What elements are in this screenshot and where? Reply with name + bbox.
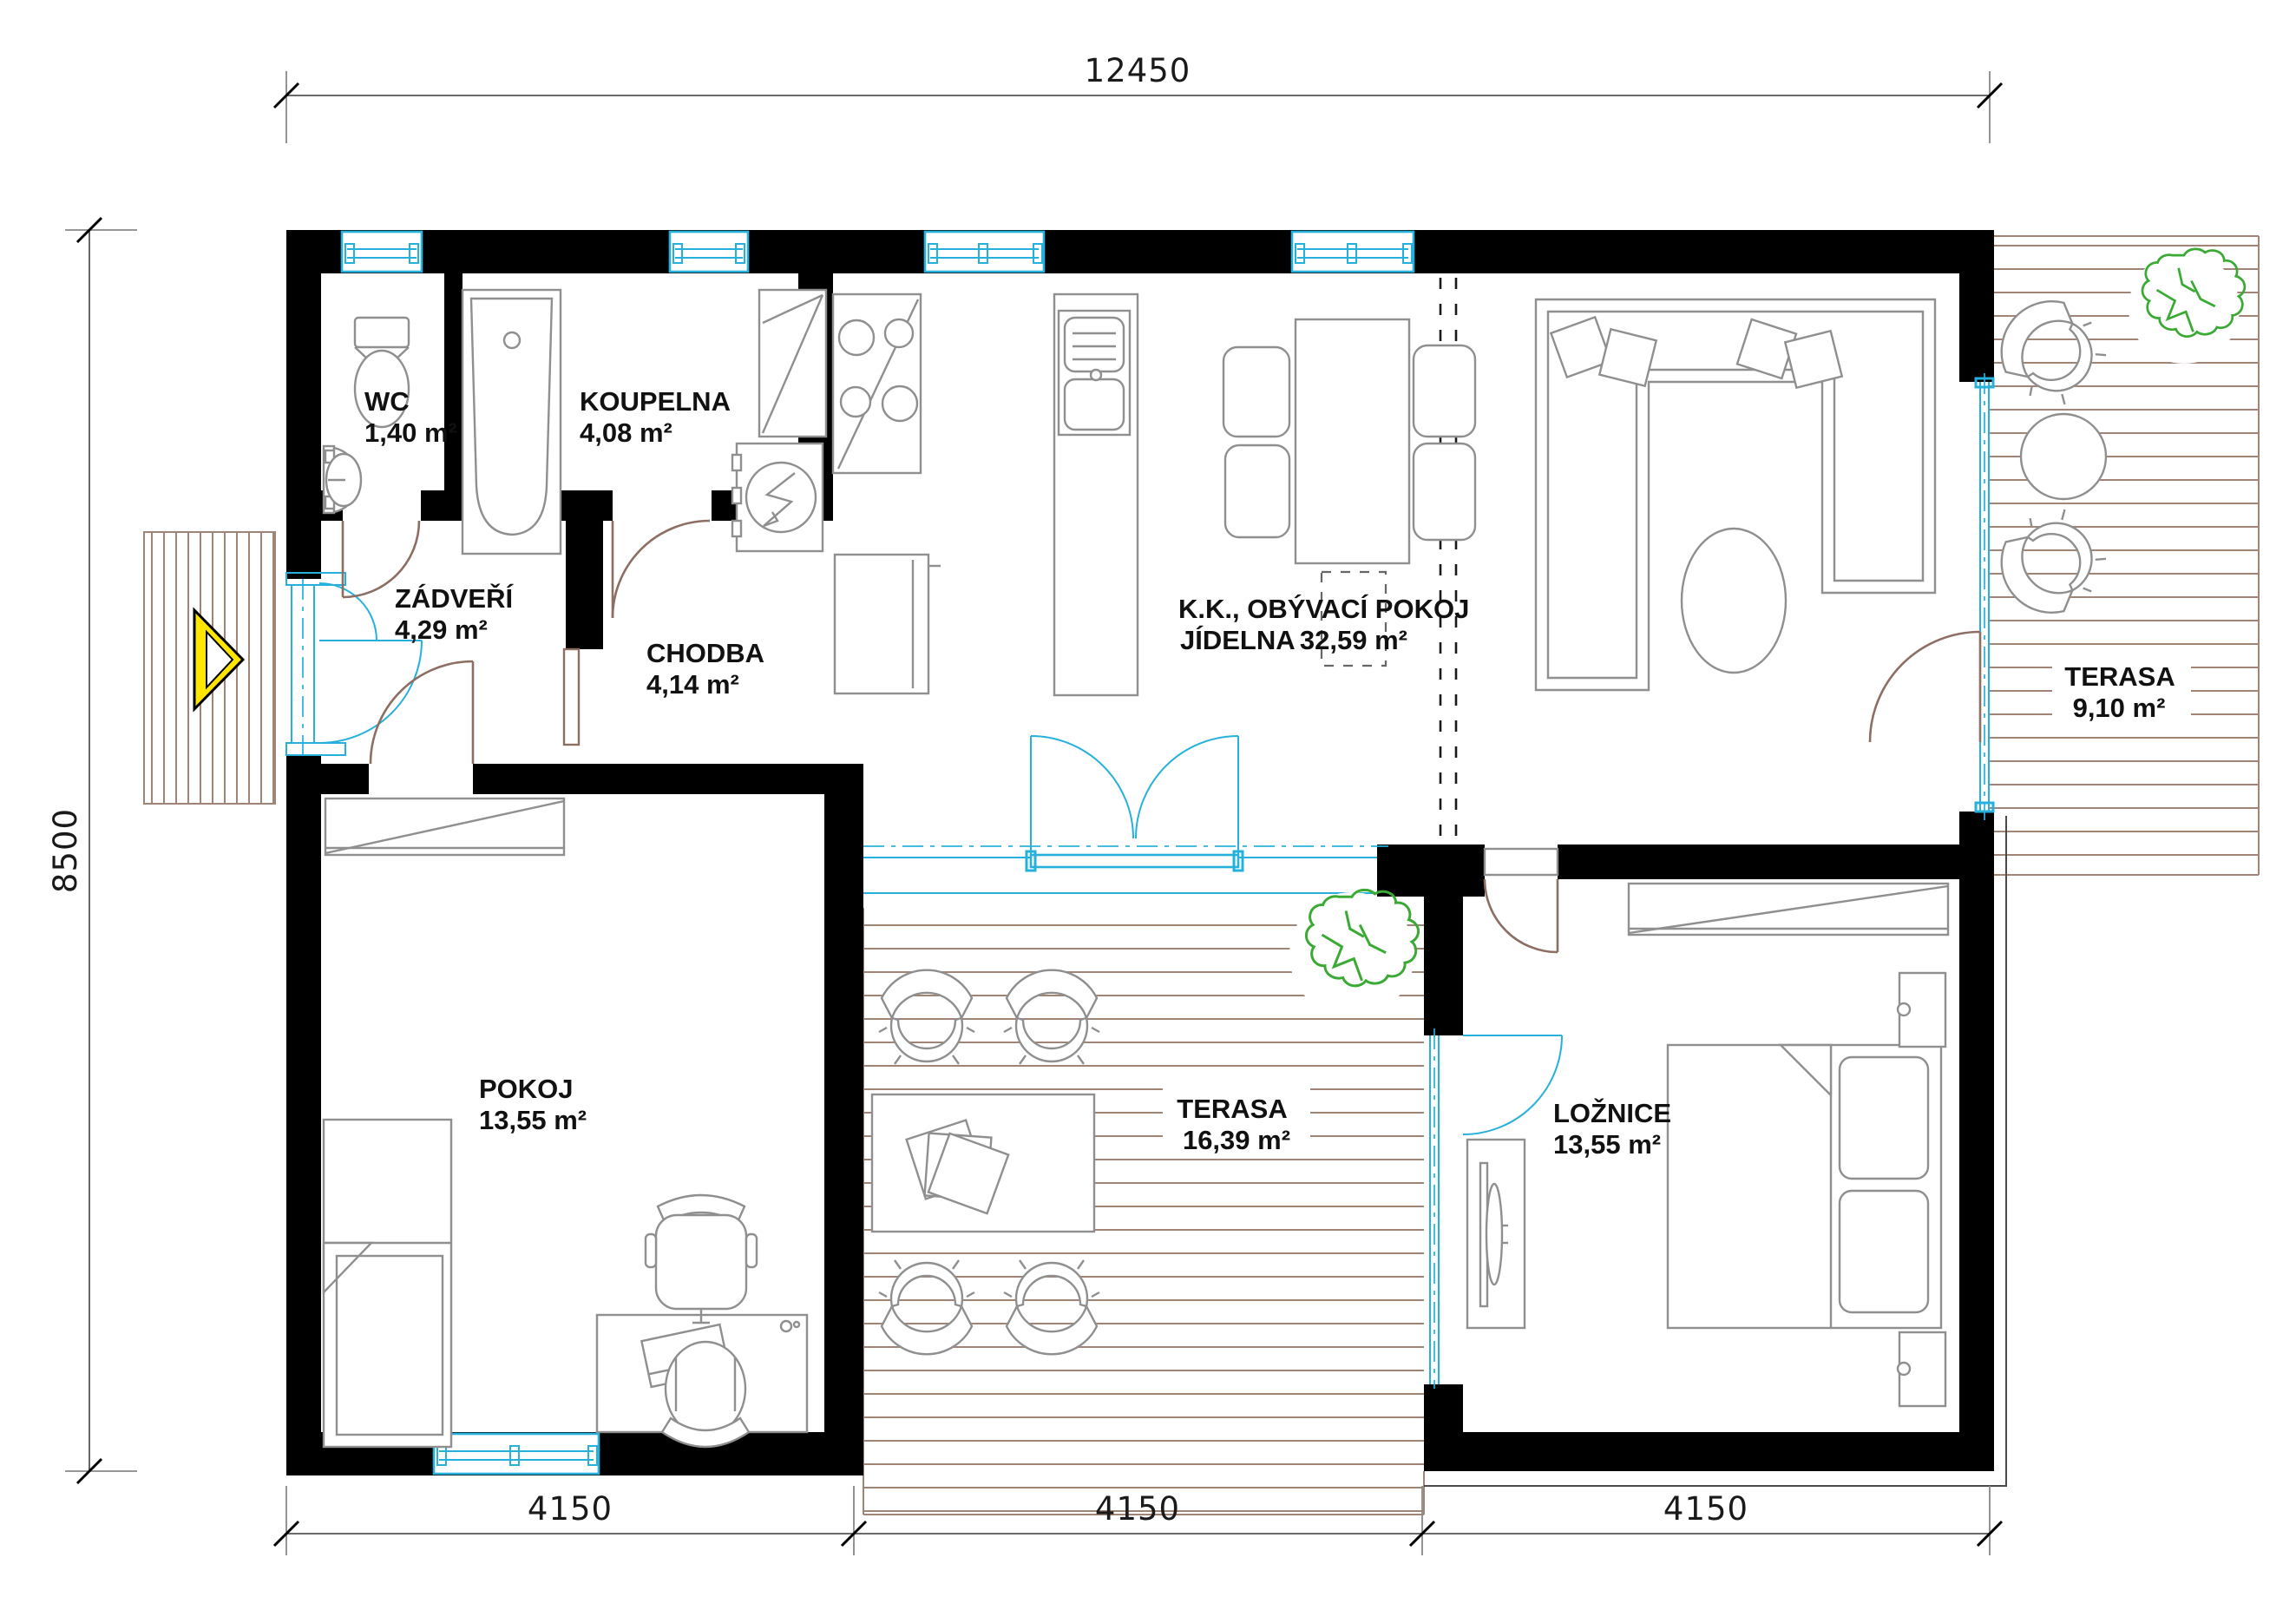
- room-label-wc: WC 1,40 m²: [364, 386, 457, 448]
- door-chodba-leaf: [564, 649, 579, 745]
- coffee-table-icon: [1682, 529, 1786, 673]
- room-label-loznice: LOŽNICE 13,55 m²: [1553, 1097, 1671, 1160]
- terrace-door-bedroom: [1463, 1035, 1562, 1134]
- room-area: 13,55 m²: [479, 1105, 587, 1135]
- door-pokoj: [371, 661, 473, 764]
- fridge-icon: [835, 555, 941, 693]
- room-label-zadveri: ZÁDVEŘÍ 4,29 m²: [395, 582, 514, 645]
- door-koupelna: [613, 521, 710, 618]
- room-name: WC: [364, 386, 410, 417]
- washing-machine-icon: [732, 444, 823, 551]
- door-bedroom: [1485, 849, 1558, 952]
- room-label-koupelna: KOUPELNA 4,08 m²: [580, 386, 731, 448]
- room-area: 1,40 m²: [364, 417, 457, 448]
- window-kitchen: [925, 232, 1044, 272]
- floor-plan: WC 1,40 m² KOUPELNA 4,08 m² ZÁDVEŘÍ 4,29…: [0, 0, 2296, 1597]
- tv-cabinet-icon: [1467, 1140, 1525, 1328]
- room-label-terasa-middle: TERASA 16,39 m²: [1163, 1087, 1310, 1158]
- room-area: 4,29 m²: [395, 614, 488, 645]
- dim-value: 4150: [528, 1490, 613, 1528]
- room-label-chodba: CHODBA 4,14 m²: [646, 638, 764, 700]
- washbasin-icon: [324, 446, 361, 513]
- room-label-living: K.K., OBÝVACÍ POKOJ JÍDELNA 32,59 m²: [1178, 594, 1469, 655]
- office-chair-icon: [646, 1195, 757, 1323]
- room-name: TERASA: [2064, 661, 2175, 692]
- dim-value: 8500: [47, 808, 84, 893]
- terrace-door-living: [1870, 632, 1980, 742]
- room-name: K.K., OBÝVACÍ POKOJ: [1178, 594, 1469, 624]
- dim-value: 4150: [1095, 1490, 1180, 1528]
- wardrobe-bedroom-icon: [1629, 884, 1948, 935]
- dim-value: 4150: [1663, 1490, 1748, 1528]
- room-name: POKOJ: [479, 1074, 574, 1104]
- window-pokoj: [434, 1434, 599, 1474]
- room-area: 16,39 m²: [1183, 1125, 1290, 1155]
- window-koupelna: [670, 232, 748, 272]
- french-doors: [1031, 736, 1238, 855]
- room-label-pokoj: POKOJ 13,55 m²: [479, 1074, 587, 1135]
- dimension-top: 12450: [274, 52, 2002, 143]
- room-label-terasa-right: TERASA 9,10 m²: [2052, 655, 2191, 728]
- stove-icon: [833, 294, 921, 473]
- bedroom-furniture: [1467, 884, 1948, 1406]
- room-name: JÍDELNA: [1180, 625, 1296, 655]
- room-area: 32,59 m²: [1300, 625, 1407, 655]
- double-bed-icon: [1668, 1045, 1941, 1328]
- room-name: CHODBA: [646, 638, 764, 668]
- window-wc: [342, 232, 422, 272]
- single-bed-icon: [324, 1120, 451, 1447]
- kitchen-fixtures: [833, 294, 1138, 695]
- room-name: TERASA: [1177, 1094, 1287, 1124]
- room-area: 4,14 m²: [646, 669, 739, 700]
- interior-doors: [343, 521, 1558, 952]
- desk-chair-icon: [662, 1342, 749, 1447]
- sofa-set: [1536, 299, 1935, 690]
- dimension-bottom: 4150 4150 4150: [274, 1486, 2002, 1555]
- kitchen-counter-sink-icon: [1054, 294, 1138, 695]
- room-area: 13,55 m²: [1553, 1129, 1661, 1160]
- nightstand-top-icon: [1898, 973, 1945, 1047]
- room-name: LOŽNICE: [1553, 1097, 1671, 1128]
- window-dining: [1292, 232, 1414, 272]
- outdoor-round-table: [2021, 414, 2106, 499]
- room-area: 4,08 m²: [580, 417, 672, 448]
- dimension-left: 8500: [47, 218, 137, 1483]
- shower-icon: [759, 290, 826, 437]
- dim-value: 12450: [1085, 52, 1191, 89]
- room-area: 9,10 m²: [2073, 693, 2166, 723]
- bathtub-icon: [462, 290, 561, 554]
- room-name: ZÁDVEŘÍ: [395, 582, 514, 614]
- wardrobe-pokoj-icon: [325, 798, 564, 855]
- glass-wall-south: [863, 736, 1388, 893]
- nightstand-bottom-icon: [1898, 1332, 1945, 1406]
- room-name: KOUPELNA: [580, 386, 731, 417]
